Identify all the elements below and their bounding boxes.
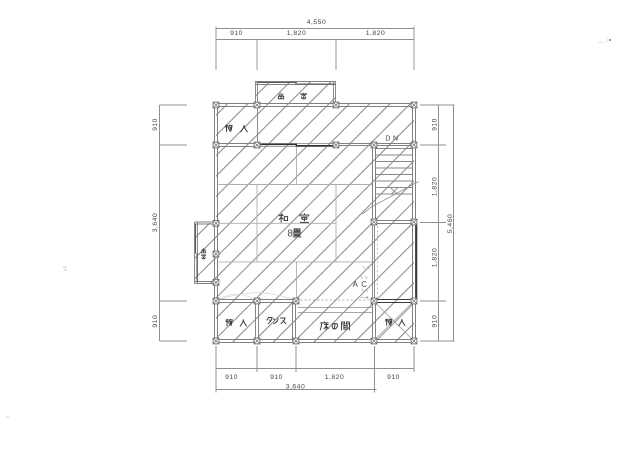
- svg-text:1,820: 1,820: [366, 30, 386, 37]
- svg-text:910: 910: [152, 118, 159, 131]
- svg-text:AC: AC: [353, 280, 371, 289]
- svg-text:910: 910: [432, 118, 439, 131]
- svg-text:910: 910: [230, 30, 243, 37]
- svg-text:1,820: 1,820: [325, 374, 345, 381]
- svg-text:910: 910: [387, 374, 400, 381]
- svg-text:910: 910: [152, 315, 159, 328]
- svg-text:1,820: 1,820: [287, 30, 307, 37]
- svg-text:910: 910: [432, 315, 439, 328]
- svg-text:4,550: 4,550: [307, 19, 327, 26]
- svg-text:3,640: 3,640: [152, 213, 159, 233]
- svg-text:910: 910: [270, 374, 283, 381]
- svg-text:5,460: 5,460: [447, 214, 454, 234]
- svg-text:DN: DN: [385, 136, 400, 143]
- svg-text:910: 910: [225, 374, 238, 381]
- svg-text:3,640: 3,640: [286, 383, 306, 390]
- svg-text:1,820: 1,820: [432, 248, 439, 268]
- svg-text:8: 8: [287, 228, 293, 239]
- svg-text:1,820: 1,820: [432, 177, 439, 197]
